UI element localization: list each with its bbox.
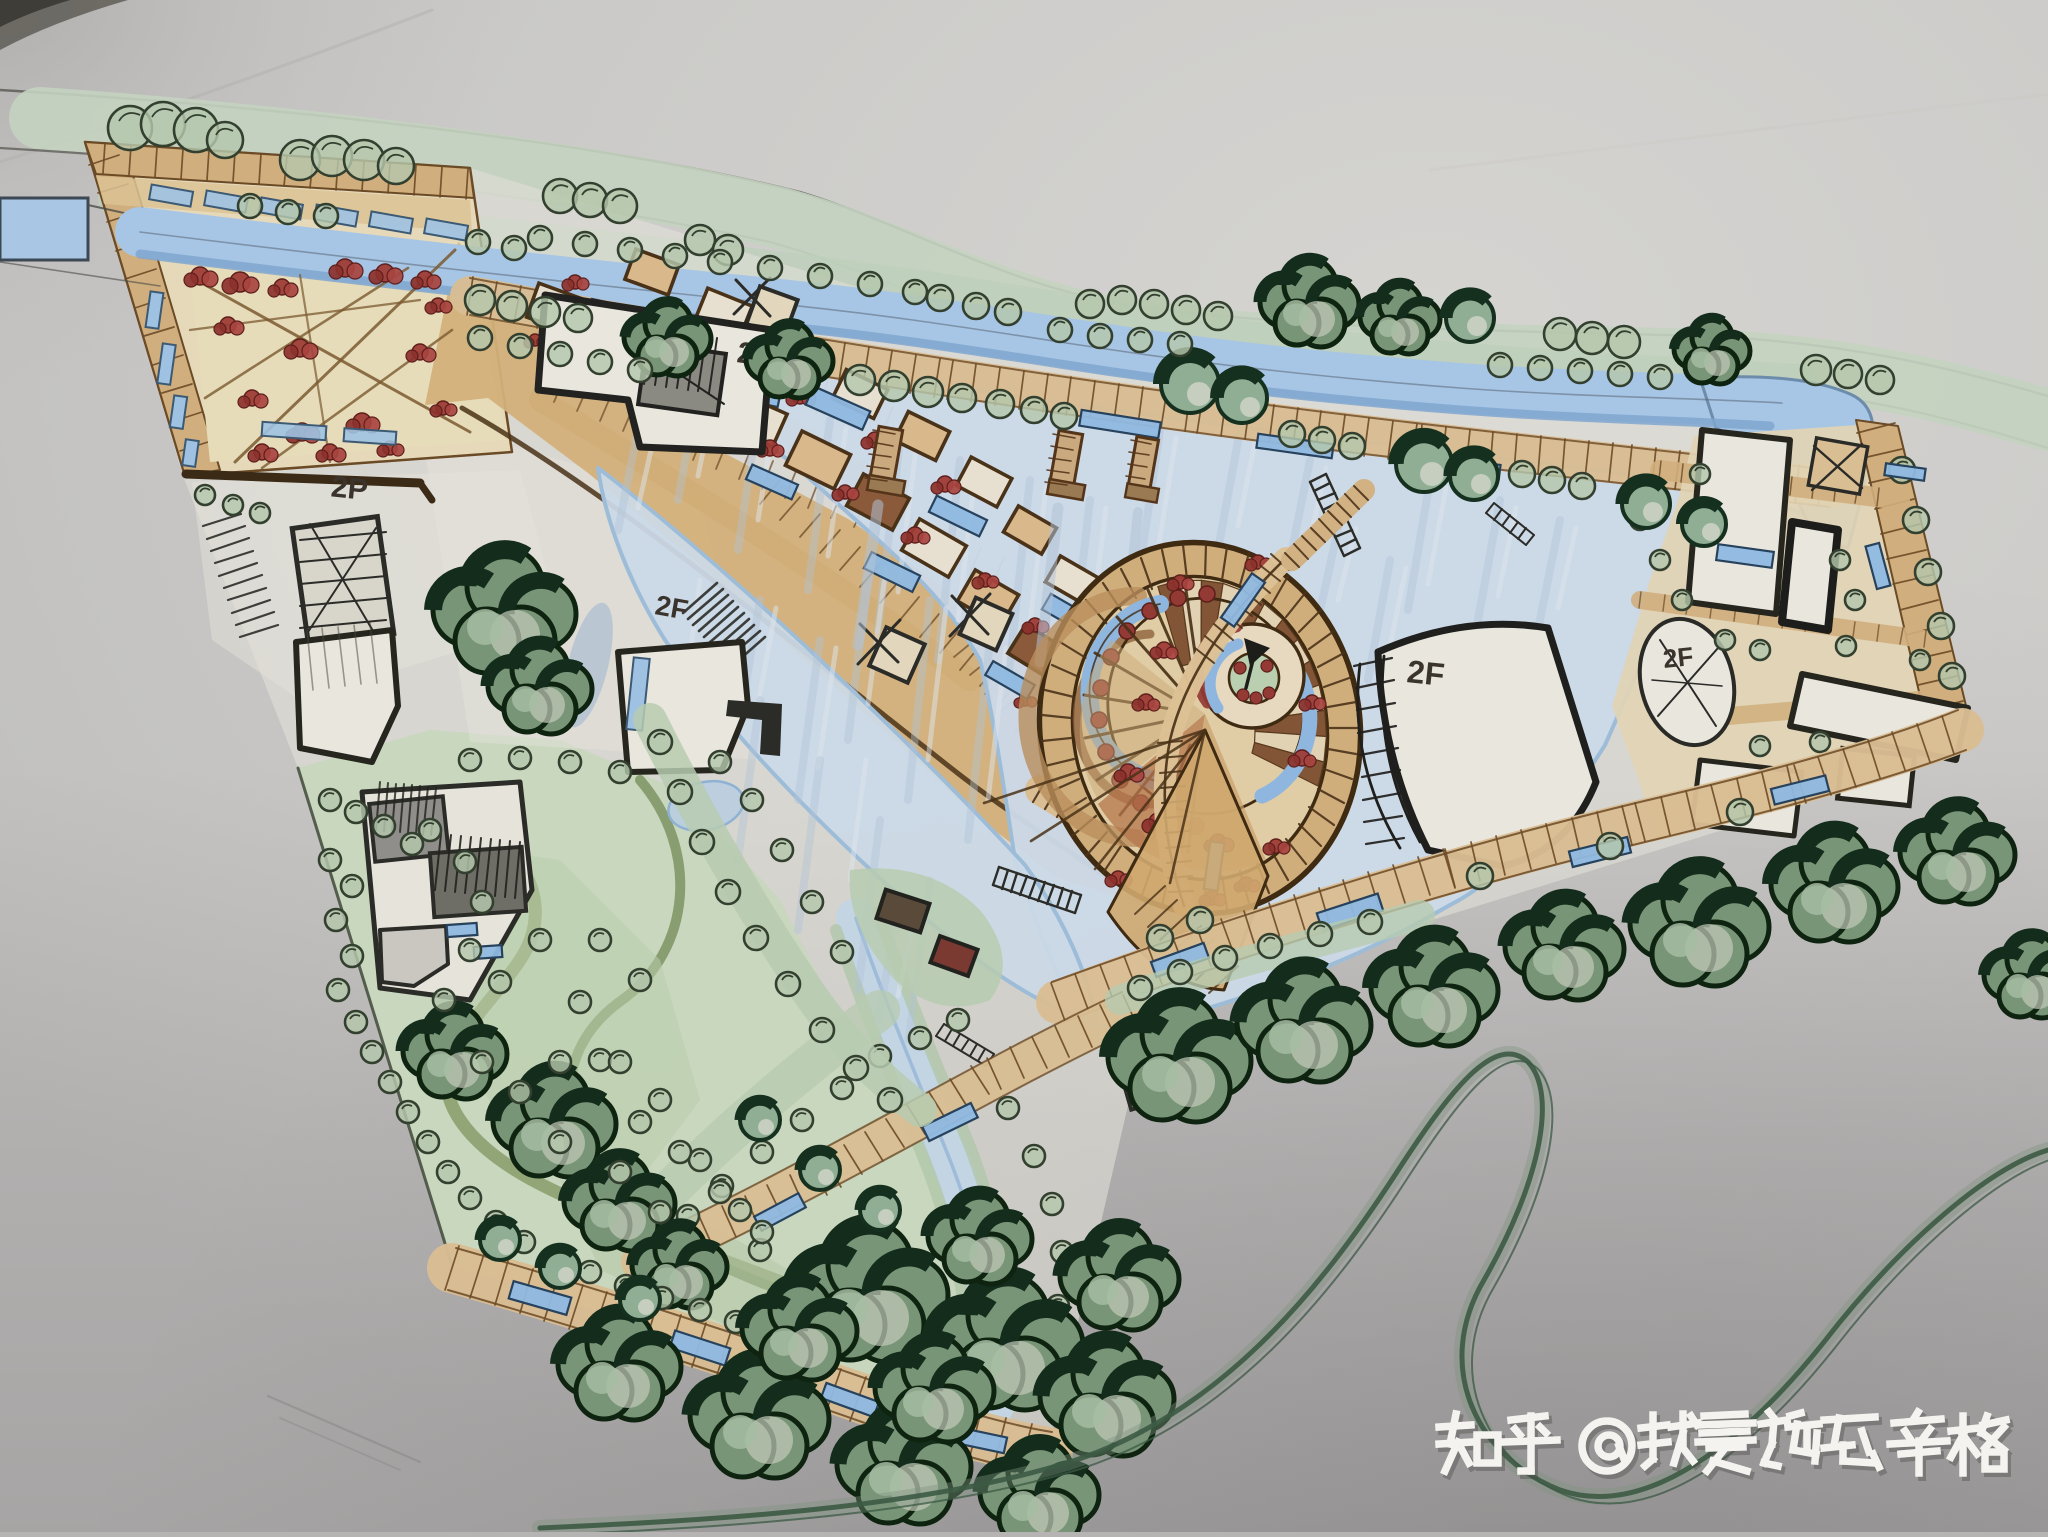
svg-text:2F: 2F <box>1661 641 1694 674</box>
svg-text:2F: 2F <box>1405 653 1446 693</box>
svg-text:2F: 2F <box>653 589 691 625</box>
svg-text:2P: 2P <box>329 470 369 507</box>
